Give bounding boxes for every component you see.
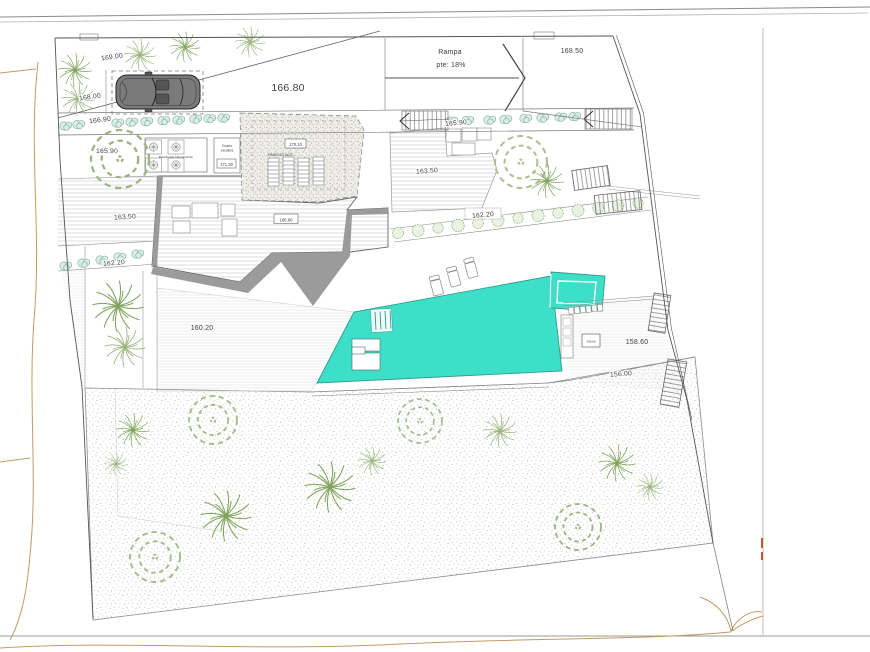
roof-label-166-80: 166.80	[280, 218, 293, 223]
deck-equipment-label: 158.60	[586, 340, 596, 344]
fan-unit-icon	[168, 140, 184, 154]
ramp-label: Rampa	[438, 49, 462, 56]
elevation-label-158-60: 158.60	[626, 339, 649, 346]
ramp-slope-label: pte: 18%	[436, 62, 465, 69]
roof-label-170-10: 170.10	[289, 142, 302, 147]
stair-room-label-1: Cuarto	[222, 144, 232, 148]
elevation-label-160-20: 160.20	[191, 325, 214, 332]
elevation-label-168-50: 168.50	[561, 48, 584, 55]
roof-label-171-30: 171.30	[220, 162, 233, 167]
elevation-label-165-90-court: 165.90	[96, 148, 118, 155]
elevation-label-166-80-driveway: 166.80	[271, 82, 304, 94]
pool-steps	[370, 308, 392, 332]
stair-room-label-2: escalera	[221, 149, 234, 153]
site-plan-drawing: 169.00 168.00 166.80 Rampa pte: 18% 168.…	[0, 0, 870, 652]
car-icon	[116, 72, 200, 112]
site-plan: 169.00 168.00 166.80 Rampa pte: 18% 168.…	[0, 0, 870, 652]
machinery-label: Maquinaria Climatización	[159, 155, 194, 159]
fan-unit-icon	[168, 158, 184, 172]
terrace-163-50-left	[58, 176, 157, 246]
fan-unit-icon	[146, 140, 162, 154]
upper-roof	[240, 113, 364, 202]
pool-benches	[352, 339, 380, 370]
solar-panels-label: PANELES ACS	[268, 153, 293, 157]
